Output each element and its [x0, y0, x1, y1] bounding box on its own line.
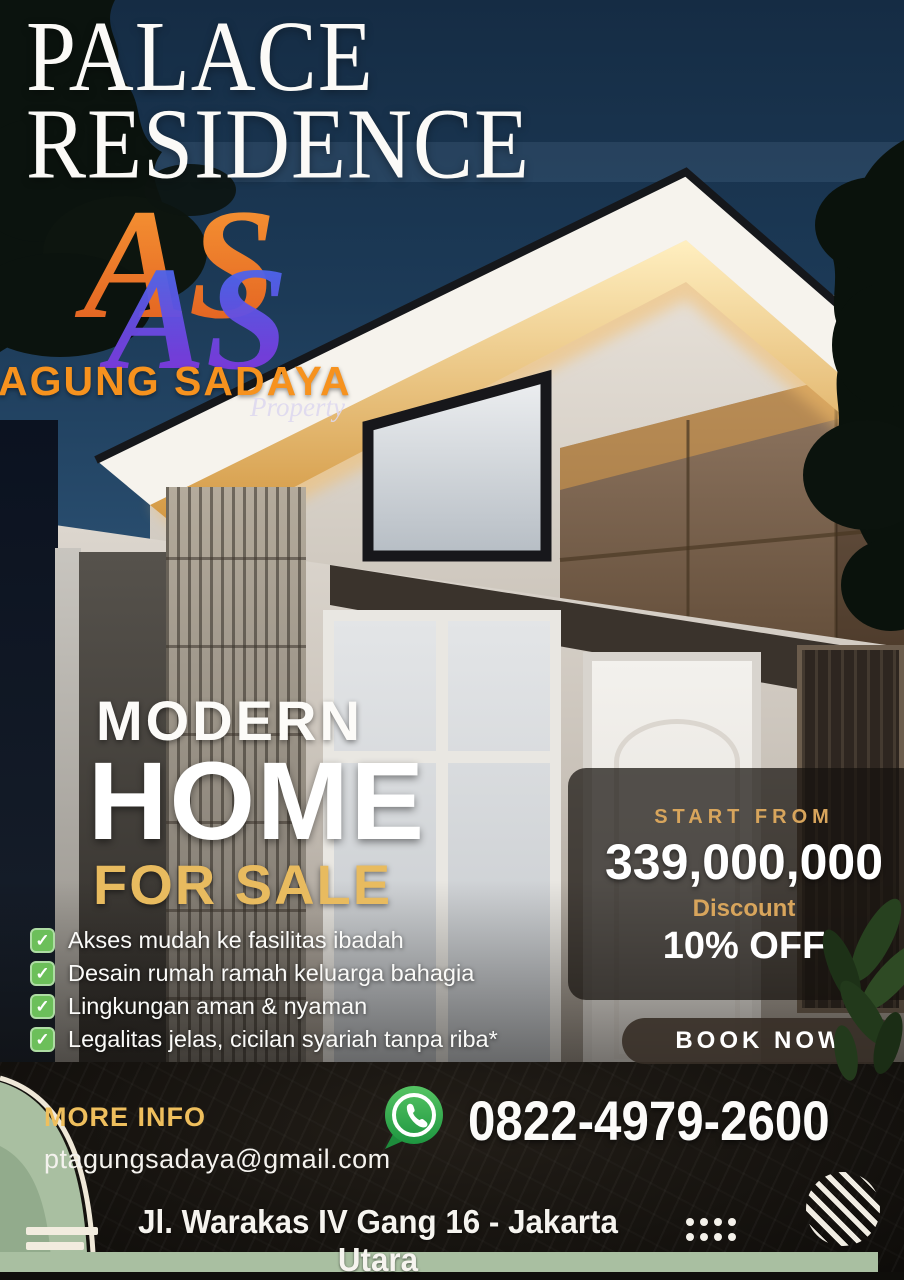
contact-email[interactable]: ptagungsadaya@gmail.com	[44, 1144, 391, 1175]
agung-sadaya-logo: AS AS	[55, 172, 355, 377]
tree-silhouette-right	[755, 140, 904, 610]
feature-row: ✓ Legalitas jelas, cicilan syariah tanpa…	[30, 1023, 498, 1056]
headline-for-sale: FOR SALE	[93, 852, 392, 917]
project-title: PALACE RESIDENCE	[26, 14, 530, 189]
address: Jl. Warakas IV Gang 16 - Jakarta Utara	[112, 1203, 644, 1279]
feature-row: ✓ Akses mudah ke fasilitas ibadah	[30, 924, 498, 957]
decor-line-2	[26, 1242, 84, 1250]
agency-division: Property	[250, 392, 345, 423]
contact-phone[interactable]: 0822-4979-2600	[468, 1088, 830, 1153]
check-icon: ✓	[30, 961, 55, 986]
feature-row: ✓ Lingkungan aman & nyaman	[30, 990, 498, 1023]
feature-label: Akses mudah ke fasilitas ibadah	[68, 927, 404, 954]
check-icon: ✓	[30, 1027, 55, 1052]
decor-line-1	[26, 1227, 98, 1235]
feature-label: Lingkungan aman & nyaman	[68, 993, 367, 1020]
price-value: 339,000,000	[605, 833, 883, 891]
more-info-label: MORE INFO	[44, 1102, 206, 1133]
feature-label: Legalitas jelas, cicilan syariah tanpa r…	[68, 1026, 498, 1053]
property-flyer: PALACE RESIDENCE AS AS AGUNG SADAYA Prop…	[0, 0, 904, 1280]
dots-grid-icon	[686, 1218, 736, 1241]
feature-row: ✓ Desain rumah ramah keluarga bahagia	[30, 957, 498, 990]
whatsapp-icon[interactable]	[382, 1084, 446, 1150]
feature-checklist: ✓ Akses mudah ke fasilitas ibadah ✓ Desa…	[30, 924, 498, 1056]
plant-leaves	[780, 895, 904, 1085]
feature-label: Desain rumah ramah keluarga bahagia	[68, 960, 474, 987]
check-icon: ✓	[30, 994, 55, 1019]
striped-circle-icon	[806, 1172, 880, 1246]
check-icon: ✓	[30, 928, 55, 953]
start-from-label: START FROM	[654, 806, 834, 829]
headline-home: HOME	[88, 738, 426, 865]
